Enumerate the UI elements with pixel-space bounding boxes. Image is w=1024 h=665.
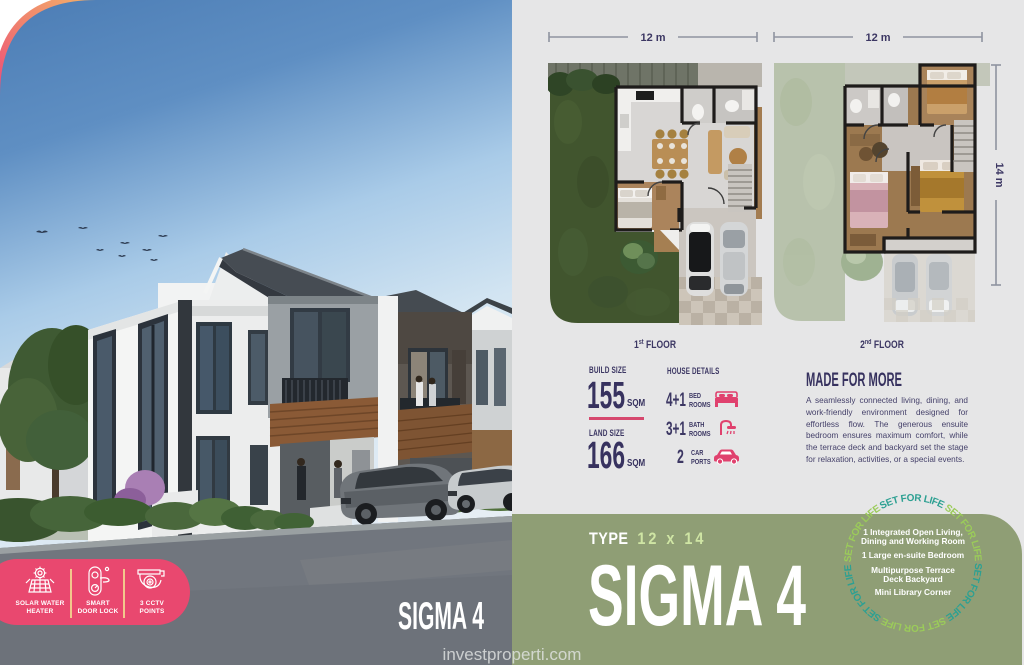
svg-text:1 Large en-suite Bedroom: 1 Large en-suite Bedroom	[862, 550, 964, 560]
svg-text:SIGMA 4: SIGMA 4	[588, 556, 806, 631]
svg-text:SET FOR LIFE SET FOR LIFE: SET FOR LIFE SET FOR LIFE SET FOR LIFE S…	[838, 488, 988, 638]
svg-text:12 m: 12 m	[865, 32, 890, 44]
svg-text:12 m: 12 m	[640, 32, 665, 44]
svg-text:Dining and Working Room: Dining and Working Room	[861, 536, 965, 546]
svg-text:Mini Library Corner: Mini Library Corner	[875, 587, 952, 597]
svg-text:MADE FOR MORE: MADE FOR MORE	[806, 370, 902, 391]
svg-text:166: 166	[587, 435, 625, 474]
svg-text:155: 155	[587, 375, 625, 414]
svg-text:14 m: 14 m	[993, 162, 1005, 187]
svg-text:Deck Backyard: Deck Backyard	[883, 574, 943, 584]
svg-text:SIGMA 4: SIGMA 4	[398, 597, 484, 633]
